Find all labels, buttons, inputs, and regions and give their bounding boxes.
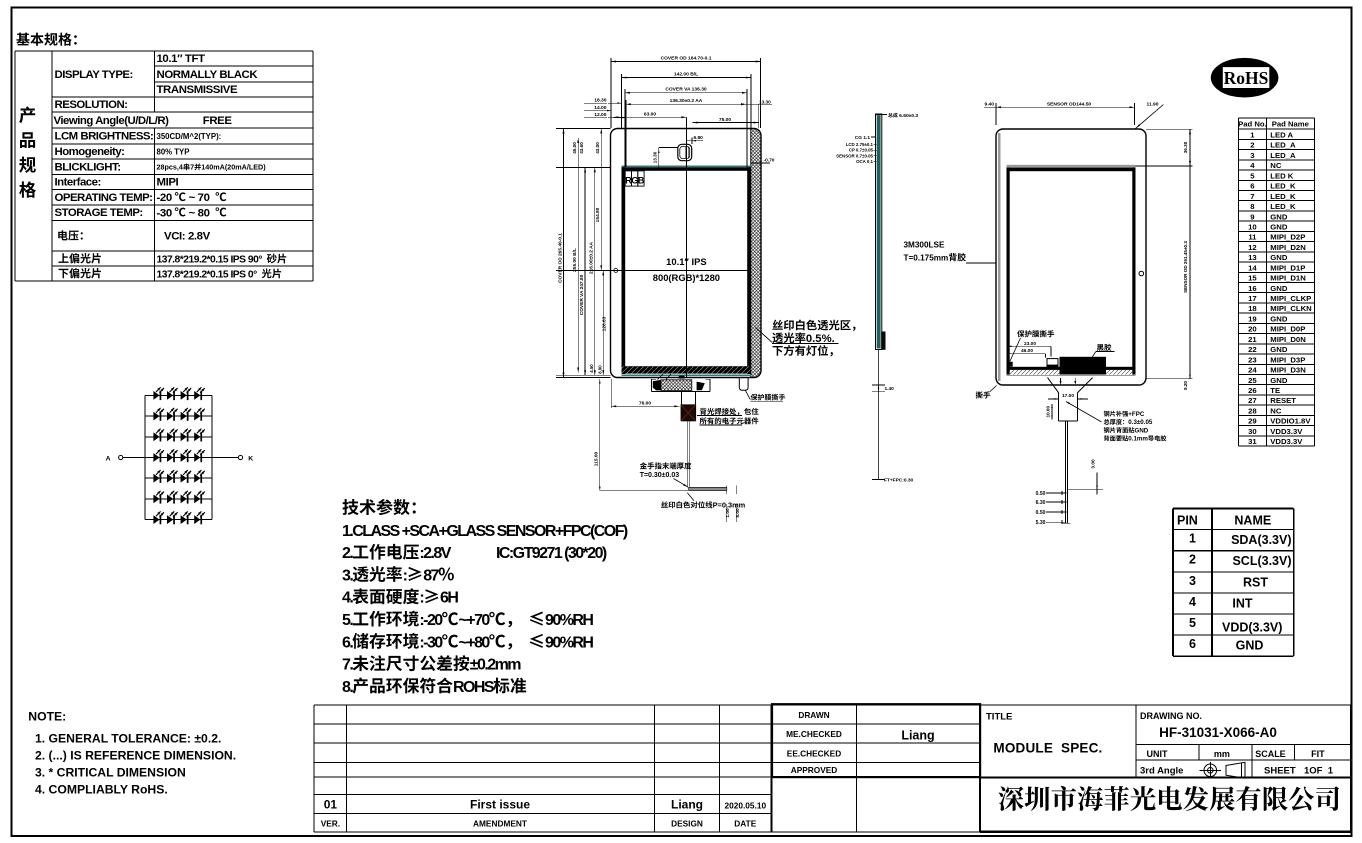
svg-text:4: 4 bbox=[1189, 595, 1196, 609]
svg-text:SHEET: SHEET bbox=[1264, 766, 1296, 777]
svg-text:13: 13 bbox=[1248, 253, 1257, 262]
svg-text:4.50: 4.50 bbox=[589, 364, 594, 373]
svg-text:11: 11 bbox=[1248, 233, 1257, 242]
svg-text:T=0.175mm: T=0.175mm bbox=[904, 254, 949, 263]
svg-text:VCI: 2.8V: VCI: 2.8V bbox=[164, 231, 211, 243]
svg-text:9.40: 9.40 bbox=[984, 101, 994, 107]
svg-text:28: 28 bbox=[1248, 406, 1257, 415]
svg-text:3rd Angle: 3rd Angle bbox=[1140, 766, 1183, 777]
svg-text:MIPI_D2P: MIPI_D2P bbox=[1270, 233, 1305, 242]
svg-text:LED K: LED K bbox=[1270, 171, 1294, 180]
svg-text:MIPI_D1N: MIPI_D1N bbox=[1270, 274, 1306, 283]
svg-text:2020.05.10: 2020.05.10 bbox=[725, 801, 767, 811]
svg-text:OCA 0.1: OCA 0.1 bbox=[856, 159, 873, 164]
svg-text:6.80: 6.80 bbox=[694, 135, 704, 141]
svg-text:LED A: LED A bbox=[1270, 131, 1293, 140]
svg-text:FREE: FREE bbox=[203, 115, 233, 127]
svg-text:CP 0.7±0.05: CP 0.7±0.05 bbox=[849, 148, 874, 153]
svg-text:6: 6 bbox=[1189, 637, 1196, 651]
svg-text:GND: GND bbox=[1270, 345, 1288, 354]
svg-text:GND: GND bbox=[1270, 315, 1288, 324]
svg-text:LED_A: LED_A bbox=[1270, 141, 1296, 150]
svg-text:GND: GND bbox=[1236, 639, 1264, 653]
svg-text:142.00 B/L: 142.00 B/L bbox=[674, 72, 698, 78]
svg-text:RST: RST bbox=[1243, 575, 1268, 589]
svg-text:255.00 B/L: 255.00 B/L bbox=[572, 248, 578, 272]
svg-text:12: 12 bbox=[1248, 243, 1257, 252]
svg-text:MODULE SPEC.: MODULE SPEC. bbox=[993, 741, 1102, 756]
svg-text:14: 14 bbox=[1248, 263, 1257, 272]
svg-text:HF-31031-X066-A0: HF-31031-X066-A0 bbox=[1159, 725, 1277, 740]
svg-text:13.30: 13.30 bbox=[652, 151, 657, 163]
svg-text:±0.2mm: ±0.2mm bbox=[470, 657, 522, 674]
svg-text:SENSOR OD 261.45±0.3: SENSOR OD 261.45±0.3 bbox=[1183, 241, 1188, 293]
svg-text:Viewing Angle(U/D/L/R): Viewing Angle(U/D/L/R) bbox=[54, 115, 170, 127]
svg-text:21: 21 bbox=[1248, 335, 1257, 344]
svg-text:LED_A: LED_A bbox=[1270, 151, 1296, 160]
svg-text:76.00: 76.00 bbox=[639, 401, 652, 407]
svg-text:RoHS: RoHS bbox=[1224, 68, 1269, 88]
svg-text:90%RH: 90%RH bbox=[545, 612, 593, 629]
svg-text:~ 80: ~ 80 bbox=[186, 207, 215, 219]
svg-text:SENSOR 0.7±0.05: SENSOR 0.7±0.05 bbox=[836, 153, 873, 158]
svg-text:NC: NC bbox=[1270, 161, 1282, 170]
svg-text:VDD3.3V: VDD3.3V bbox=[1270, 437, 1303, 446]
svg-text:1: 1 bbox=[1189, 532, 1196, 546]
svg-text:0.50: 0.50 bbox=[1036, 491, 1046, 497]
svg-text:ROHS: ROHS bbox=[453, 679, 495, 696]
svg-text:350CD/M^2(TYP):: 350CD/M^2(TYP): bbox=[157, 132, 222, 141]
svg-text:2. (...) IS REFERENCE DIMENSIO: 2. (...) IS REFERENCE DIMENSION. bbox=[35, 749, 236, 763]
svg-text:154.80: 154.80 bbox=[595, 207, 601, 222]
svg-text:4: 4 bbox=[1250, 161, 1255, 170]
svg-text:VER.: VER. bbox=[321, 819, 340, 829]
svg-text:10.1″ TFT: 10.1″ TFT bbox=[157, 53, 206, 65]
svg-text:30: 30 bbox=[1248, 427, 1257, 436]
svg-text:8: 8 bbox=[1250, 202, 1255, 211]
svg-text:LCD 2.75±0.1: LCD 2.75±0.1 bbox=[846, 142, 874, 147]
svg-text:NAME: NAME bbox=[1234, 514, 1271, 528]
svg-text:2: 2 bbox=[1250, 141, 1254, 150]
svg-text:P=0.3mm: P=0.3mm bbox=[713, 501, 746, 510]
svg-text:VDDIO1.8V: VDDIO1.8V bbox=[1270, 417, 1311, 426]
svg-text::-30: :-30 bbox=[419, 634, 443, 651]
svg-text::2.8V: :2.8V bbox=[419, 545, 451, 562]
svg-text:3.00: 3.00 bbox=[1090, 459, 1096, 469]
svg-text:GND: GND bbox=[1270, 376, 1288, 385]
svg-text:87: 87 bbox=[423, 567, 439, 584]
svg-text:80% TYP: 80% TYP bbox=[157, 147, 190, 156]
svg-text:10.1″ IPS: 10.1″ IPS bbox=[666, 256, 706, 267]
svg-text:LED_K: LED_K bbox=[1270, 192, 1296, 201]
svg-text:7: 7 bbox=[190, 163, 194, 172]
svg-text:MIPI_D2N: MIPI_D2N bbox=[1270, 243, 1306, 252]
svg-text:DRAWING NO.: DRAWING NO. bbox=[1140, 711, 1202, 721]
svg-text:4. COMPLIABLY RoHS.: 4. COMPLIABLY RoHS. bbox=[35, 783, 168, 797]
svg-text:CG 1.1: CG 1.1 bbox=[855, 135, 871, 141]
svg-text:SDA(3.3V): SDA(3.3V) bbox=[1231, 533, 1291, 547]
svg-text:5: 5 bbox=[1189, 616, 1196, 630]
svg-text:B: B bbox=[638, 175, 645, 185]
svg-text:GND: GND bbox=[1135, 427, 1149, 434]
svg-text:LED_K: LED_K bbox=[1270, 182, 1296, 191]
svg-text:11.90: 11.90 bbox=[1147, 101, 1159, 107]
svg-text:9: 9 bbox=[1250, 212, 1254, 221]
svg-text:RESET: RESET bbox=[1270, 396, 1296, 405]
svg-text:Liang: Liang bbox=[671, 798, 703, 812]
svg-text:GND: GND bbox=[1270, 253, 1288, 262]
svg-text:UNIT: UNIT bbox=[1147, 749, 1168, 759]
svg-text:36.30: 36.30 bbox=[1183, 141, 1188, 153]
svg-text:20: 20 bbox=[1248, 325, 1257, 334]
svg-text:ME.CHECKED: ME.CHECKED bbox=[786, 729, 842, 739]
svg-text:18: 18 bbox=[1248, 304, 1257, 313]
svg-text:Liang: Liang bbox=[901, 729, 934, 743]
svg-text:16: 16 bbox=[1248, 284, 1257, 293]
svg-text:MIPI: MIPI bbox=[157, 177, 179, 189]
svg-text:First issue: First issue bbox=[470, 798, 530, 812]
svg-text:COVER OD 265.40-0.1: COVER OD 265.40-0.1 bbox=[557, 233, 563, 283]
svg-text:29: 29 bbox=[1248, 417, 1257, 426]
svg-text:BLICKLIGHT:: BLICKLIGHT: bbox=[55, 161, 121, 173]
svg-text:-0.70: -0.70 bbox=[764, 158, 775, 164]
svg-text:0.3±0.05: 0.3±0.05 bbox=[1128, 419, 1153, 426]
svg-text:216.00±0.2 AA: 216.00±0.2 AA bbox=[589, 241, 595, 274]
svg-text:TITLE: TITLE bbox=[986, 712, 1012, 723]
svg-text:90%RH: 90%RH bbox=[545, 634, 593, 651]
svg-text:SCL(3.3V): SCL(3.3V) bbox=[1232, 554, 1291, 568]
svg-text:22: 22 bbox=[1248, 345, 1257, 354]
svg-text:3: 3 bbox=[1189, 574, 1196, 588]
svg-text:6H: 6H bbox=[440, 590, 458, 607]
svg-text:Interface:: Interface: bbox=[55, 177, 101, 189]
svg-text:01: 01 bbox=[324, 798, 338, 812]
svg-text:~ 70: ~ 70 bbox=[186, 192, 215, 204]
svg-text:APPROVED: APPROVED bbox=[791, 765, 838, 775]
svg-text:3.: 3. bbox=[342, 567, 353, 584]
svg-text:VDD3.3V: VDD3.3V bbox=[1270, 427, 1303, 436]
svg-text:137.8*219.2*0.15 IPS 90°: 137.8*219.2*0.15 IPS 90° bbox=[157, 254, 267, 265]
svg-text:17.00: 17.00 bbox=[1062, 393, 1074, 399]
svg-text:23.00: 23.00 bbox=[1024, 341, 1036, 347]
svg-text:137.8*219.2*0.15 IPS 0°: 137.8*219.2*0.15 IPS 0° bbox=[157, 269, 262, 280]
svg-text:140mA(20mA/LED): 140mA(20mA/LED) bbox=[201, 163, 266, 172]
svg-text:DISPLAY TYPE:: DISPLAY TYPE: bbox=[55, 69, 133, 81]
svg-text:3: 3 bbox=[1250, 151, 1254, 160]
svg-text:8.20: 8.20 bbox=[1183, 381, 1188, 390]
svg-text:GND: GND bbox=[1270, 212, 1288, 221]
svg-text:NC: NC bbox=[1270, 406, 1282, 415]
svg-text:0.1mm: 0.1mm bbox=[1128, 436, 1148, 443]
svg-text:DATE: DATE bbox=[734, 819, 756, 829]
svg-text:NORMALLY BLACK: NORMALLY BLACK bbox=[157, 69, 259, 81]
svg-text:GND: GND bbox=[1270, 223, 1288, 232]
svg-text:7.: 7. bbox=[342, 657, 353, 674]
svg-text:24: 24 bbox=[1248, 366, 1257, 375]
svg-text:136.30±0.2 AA: 136.30±0.2 AA bbox=[670, 98, 703, 104]
svg-text:EE.CHECKED: EE.CHECKED bbox=[787, 748, 841, 758]
svg-text:5.30: 5.30 bbox=[1036, 520, 1046, 526]
svg-text:7: 7 bbox=[1250, 192, 1254, 201]
svg-text:31: 31 bbox=[1248, 437, 1257, 446]
svg-text:63.00: 63.00 bbox=[644, 112, 657, 118]
svg-text:COVER VA 247.80: COVER VA 247.80 bbox=[579, 274, 585, 315]
svg-text:MIPI_CLKN: MIPI_CLKN bbox=[1270, 304, 1312, 313]
svg-text:-20: -20 bbox=[157, 192, 175, 204]
svg-text:1. GENERAL TOLERANCE: ±0.2.: 1. GENERAL TOLERANCE: ±0.2. bbox=[35, 732, 221, 746]
svg-text:1OF 1: 1OF 1 bbox=[1304, 766, 1334, 777]
svg-text:MIPI_D1P: MIPI_D1P bbox=[1270, 263, 1305, 272]
svg-text:K: K bbox=[248, 455, 253, 462]
svg-text:28pcs,4: 28pcs,4 bbox=[157, 163, 183, 172]
svg-text:OPERATING TEMP:: OPERATING TEMP: bbox=[55, 192, 153, 204]
svg-text:19: 19 bbox=[1248, 315, 1257, 324]
svg-text:LED_K: LED_K bbox=[1270, 202, 1296, 211]
svg-text:2: 2 bbox=[1189, 553, 1196, 567]
svg-text:6.30: 6.30 bbox=[1036, 500, 1046, 506]
svg-text:27: 27 bbox=[1248, 396, 1257, 405]
svg-text:DRAWN: DRAWN bbox=[798, 710, 829, 720]
svg-text:PIN: PIN bbox=[1177, 514, 1198, 528]
svg-text:1.CLASS +SCA+GLASS SENSOR+FPC(: 1.CLASS +SCA+GLASS SENSOR+FPC(COF) bbox=[342, 523, 628, 540]
svg-text::: : bbox=[419, 590, 423, 607]
svg-text:COVER VA 136.30: COVER VA 136.30 bbox=[665, 87, 707, 93]
svg-text:15: 15 bbox=[1248, 274, 1257, 283]
svg-text:MIPI_D0N: MIPI_D0N bbox=[1270, 335, 1306, 344]
svg-text:46.00: 46.00 bbox=[1021, 348, 1033, 354]
svg-text:SENSOR OD144.50: SENSOR OD144.50 bbox=[1047, 101, 1092, 107]
svg-text::: : bbox=[403, 567, 407, 584]
svg-text:T=0.30±0.03: T=0.30±0.03 bbox=[640, 472, 680, 479]
svg-text:MIPI_D3N: MIPI_D3N bbox=[1270, 366, 1306, 375]
svg-text:17: 17 bbox=[1248, 294, 1257, 303]
svg-text:TRANSMISSIVE: TRANSMISSIVE bbox=[157, 84, 238, 96]
svg-text:LCM BRIGHTNESS:: LCM BRIGHTNESS: bbox=[55, 131, 154, 143]
svg-text:GND: GND bbox=[1270, 284, 1288, 293]
svg-text:5.: 5. bbox=[342, 612, 353, 629]
svg-text:SCALE: SCALE bbox=[1255, 749, 1286, 759]
svg-text:~+80: ~+80 bbox=[459, 634, 491, 651]
svg-text:5: 5 bbox=[1250, 171, 1255, 180]
svg-text:2.: 2. bbox=[342, 545, 353, 562]
svg-text:FT+FPC:0.30: FT+FPC:0.30 bbox=[884, 478, 914, 484]
svg-text:45.00: 45.00 bbox=[572, 142, 577, 154]
svg-text:6: 6 bbox=[1250, 182, 1254, 191]
svg-text:8.: 8. bbox=[342, 679, 353, 696]
svg-text:~+70: ~+70 bbox=[459, 612, 491, 629]
svg-text:4.: 4. bbox=[342, 590, 353, 607]
svg-text:VDD(3.3V): VDD(3.3V) bbox=[1222, 621, 1282, 635]
svg-text:STORAGE TEMP:: STORAGE TEMP: bbox=[55, 207, 143, 219]
svg-text:Homogeneity:: Homogeneity: bbox=[55, 146, 125, 158]
svg-text:DESIGN: DESIGN bbox=[671, 819, 703, 829]
svg-text:-30: -30 bbox=[157, 207, 175, 219]
svg-text:TE: TE bbox=[1270, 386, 1280, 395]
svg-text:3. * CRITICAL DIMENSION: 3. * CRITICAL DIMENSION bbox=[35, 766, 186, 780]
svg-text:26: 26 bbox=[1248, 386, 1257, 395]
svg-text:AMENDMENT: AMENDMENT bbox=[473, 819, 527, 829]
svg-text:23: 23 bbox=[1248, 355, 1257, 364]
svg-text:1.40: 1.40 bbox=[885, 386, 895, 392]
svg-text:COVER OD 164.70-0.1: COVER OD 164.70-0.1 bbox=[661, 56, 712, 62]
svg-text:3M300LSE: 3M300LSE bbox=[904, 241, 945, 250]
svg-text:+FPC: +FPC bbox=[1128, 411, 1145, 418]
svg-text:MIPI_D0P: MIPI_D0P bbox=[1270, 325, 1305, 334]
svg-text:Pad No.: Pad No. bbox=[1238, 120, 1267, 129]
svg-text:FIT: FIT bbox=[1311, 749, 1325, 759]
svg-text:10: 10 bbox=[1248, 223, 1257, 232]
svg-text:INT: INT bbox=[1232, 596, 1253, 610]
svg-text:IC:GT9271 (30*20): IC:GT9271 (30*20) bbox=[496, 545, 607, 562]
svg-text:0.50: 0.50 bbox=[1036, 510, 1046, 516]
svg-text:Pad Name: Pad Name bbox=[1272, 120, 1310, 129]
svg-text:25: 25 bbox=[1248, 376, 1257, 385]
svg-text:1: 1 bbox=[1250, 131, 1255, 140]
svg-text:6.60±0.3: 6.60±0.3 bbox=[898, 113, 919, 119]
svg-text:NOTE:: NOTE: bbox=[28, 710, 66, 724]
svg-text:8.90: 8.90 bbox=[597, 365, 602, 374]
svg-text:A: A bbox=[106, 455, 111, 462]
svg-text:MIPI_D3P: MIPI_D3P bbox=[1270, 355, 1305, 364]
svg-text:6.: 6. bbox=[342, 634, 353, 651]
svg-text:43.60: 43.60 bbox=[579, 142, 584, 154]
svg-text:MIPI_CLKP: MIPI_CLKP bbox=[1270, 294, 1311, 303]
svg-text:43.00: 43.00 bbox=[595, 142, 600, 154]
svg-text:mm: mm bbox=[1214, 749, 1230, 759]
svg-text:RESOLUTION:: RESOLUTION: bbox=[55, 99, 128, 111]
svg-text:10.00: 10.00 bbox=[1046, 406, 1051, 418]
svg-text:800(RGB)*1280: 800(RGB)*1280 bbox=[653, 272, 720, 283]
svg-text:75.00: 75.00 bbox=[719, 117, 732, 123]
svg-text:115.00: 115.00 bbox=[594, 451, 600, 466]
svg-text:128.63: 128.63 bbox=[602, 316, 608, 331]
svg-text::-20: :-20 bbox=[419, 612, 443, 629]
